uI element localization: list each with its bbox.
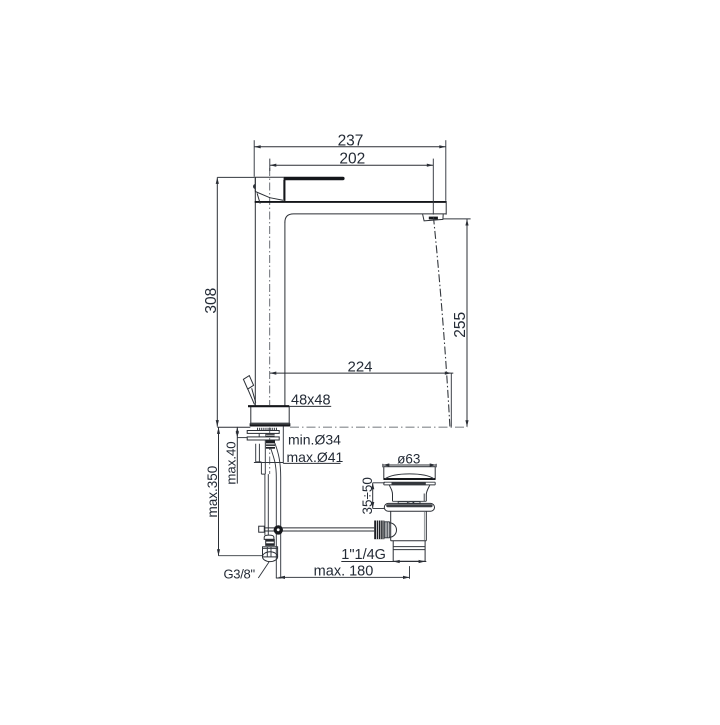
svg-text:max.40: max.40: [223, 441, 238, 484]
svg-text:min.Ø34: min.Ø34: [288, 431, 341, 447]
svg-text:max. 180: max. 180: [314, 564, 374, 580]
svg-text:1"1/4G: 1"1/4G: [341, 547, 386, 563]
svg-text:max.Ø41: max.Ø41: [287, 449, 344, 465]
svg-text:35÷50: 35÷50: [360, 477, 375, 514]
svg-text:202: 202: [339, 151, 365, 168]
svg-text:308: 308: [203, 288, 220, 314]
svg-text:224: 224: [347, 358, 372, 375]
svg-text:G3/8": G3/8": [224, 566, 256, 581]
svg-text:ø63: ø63: [397, 451, 420, 466]
svg-text:max.350: max.350: [205, 466, 220, 518]
svg-text:255: 255: [452, 312, 469, 338]
svg-text:237: 237: [338, 132, 364, 149]
